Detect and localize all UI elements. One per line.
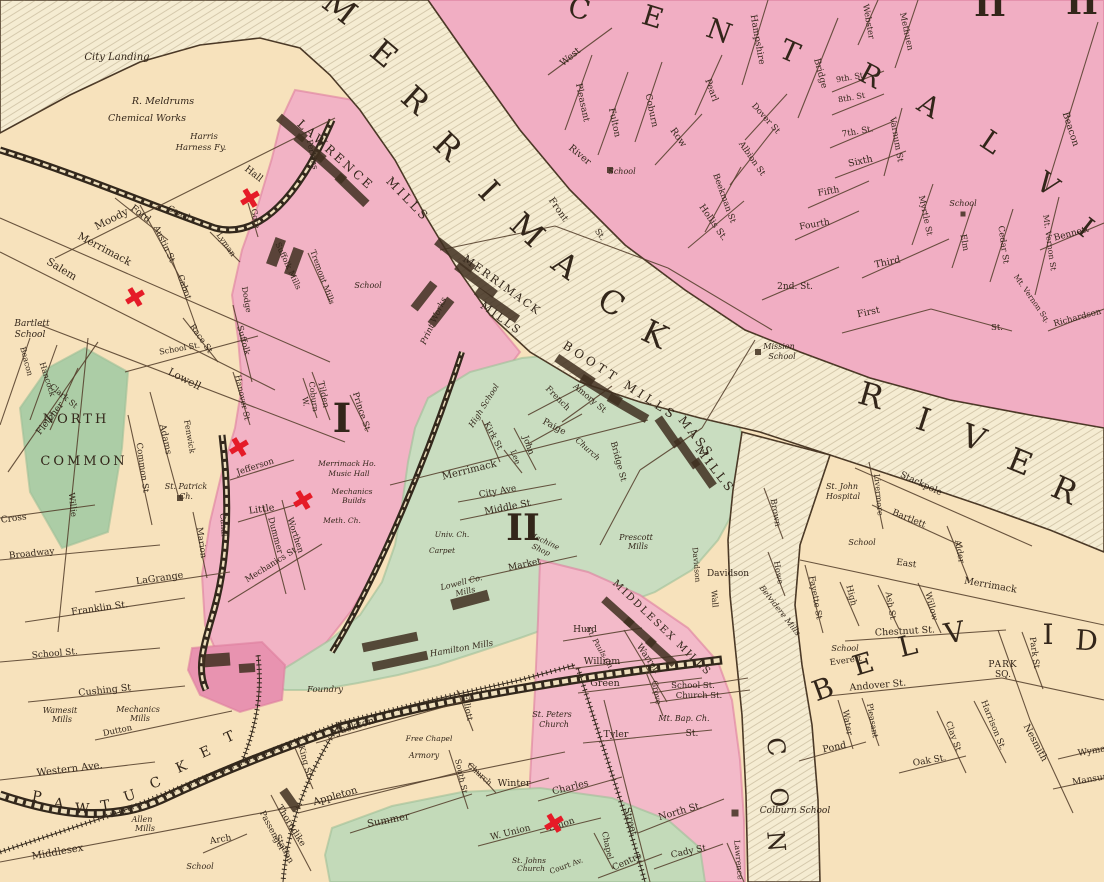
- map-label-harness-fy: Harness Fy.: [175, 143, 227, 153]
- map-label-st-peters: St. Peters: [532, 710, 571, 719]
- map-label-sq: SQ.: [995, 670, 1011, 680]
- map-label-school: School: [848, 538, 876, 547]
- map-label-univ-ch: Univ. Ch.: [435, 530, 470, 539]
- map-label-mechanics: Mechanics: [331, 487, 373, 496]
- map-label-chemical-works: Chemical Works: [108, 113, 186, 124]
- map-label-school: School: [15, 330, 46, 340]
- map-label-wall: Wall: [709, 590, 720, 609]
- map-label-mechanics: Mechanics: [115, 705, 160, 714]
- map-label-mission: Mission: [762, 342, 795, 351]
- map-label-prescott: Prescott: [618, 533, 654, 542]
- map-label-city-landing: City Landing: [84, 52, 149, 63]
- map-label-ch: Ch.: [179, 492, 193, 501]
- map-label-bartlett: Bartlett: [13, 319, 50, 329]
- historical-city-map[interactable]: MERRIMACKRIVERCENTRALVIBELVIDCONPAWTUCKE…: [0, 0, 1104, 882]
- map-label-st: St.: [991, 323, 1003, 333]
- map-label-green: Green: [590, 678, 620, 689]
- map-label-armory: Armory: [408, 751, 440, 760]
- map-label-canal: Canal: [218, 513, 229, 537]
- map-label-church-st: Church St.: [676, 691, 722, 701]
- map-label-school-st: School St.: [671, 681, 715, 691]
- map-label-mills: Mills: [129, 714, 150, 723]
- map-label-davidson: Davidson: [707, 569, 749, 579]
- map-label-st-patrick: St. Patrick: [165, 482, 208, 491]
- map-canvas: MERRIMACKRIVERCENTRALVIBELVIDCONPAWTUCKE…: [0, 0, 1104, 882]
- map-label-carpet: Carpet: [429, 546, 456, 555]
- map-label-park: PARK: [988, 660, 1017, 670]
- map-label-colburn-school: Colburn School: [760, 806, 831, 816]
- building-block: [732, 810, 739, 817]
- map-label-2nd-st: 2nd. St.: [777, 282, 813, 292]
- map-label-w: W: [75, 801, 91, 818]
- map-label-church: Church: [539, 720, 569, 729]
- map-label-mills: Mills: [627, 542, 648, 551]
- map-label-i: I: [333, 395, 352, 442]
- map-label-school: School: [608, 167, 636, 176]
- map-label-school: School: [354, 281, 382, 290]
- map-label-allen: Allen: [131, 815, 153, 824]
- map-label-r-meldrums: R. Meldrums: [131, 96, 194, 107]
- map-label-common: COMMON: [40, 454, 127, 469]
- building-block: [202, 653, 231, 668]
- map-label-harris: Harris: [189, 132, 218, 142]
- map-label-mills: Mills: [134, 824, 155, 833]
- map-label-music-hall: Music Hall: [327, 469, 370, 478]
- building-block: [239, 663, 256, 673]
- map-label-mt-bap-ch: Mt. Bap. Ch.: [657, 714, 709, 723]
- map-label-d: D: [1074, 623, 1099, 657]
- map-label-merrimack-ho: Merrimack Ho.: [317, 459, 376, 468]
- building-block: [961, 212, 966, 217]
- map-label-ii: II: [1066, 0, 1098, 23]
- map-label-foundry: Foundry: [306, 685, 343, 695]
- map-label-meth-ch: Meth. Ch.: [322, 516, 361, 525]
- building-block: [755, 349, 761, 355]
- map-label-school: School: [831, 644, 859, 653]
- map-label-tyler: Tyler: [604, 729, 629, 740]
- map-label-st: St.: [686, 729, 699, 739]
- map-label-school: School: [186, 862, 214, 871]
- map-label-st-john: St. John: [826, 482, 858, 491]
- map-label-i: I: [1042, 618, 1053, 651]
- map-label-free-chapel: Free Chapel: [405, 734, 453, 743]
- map-label-school: School: [768, 352, 796, 361]
- map-label-hospital: Hospital: [825, 492, 861, 501]
- map-label-ii: II: [974, 0, 1006, 25]
- map-label-church: Church: [517, 864, 545, 873]
- map-label-n: N: [761, 830, 791, 853]
- map-label-mills: Mills: [51, 715, 72, 724]
- map-label-builds: Builds: [341, 496, 366, 505]
- map-label-school: School: [949, 199, 977, 208]
- map-label-north: NORTH: [43, 412, 110, 427]
- map-label-winter: Winter: [498, 778, 531, 789]
- map-label-wamesit: Wamesit: [43, 706, 78, 715]
